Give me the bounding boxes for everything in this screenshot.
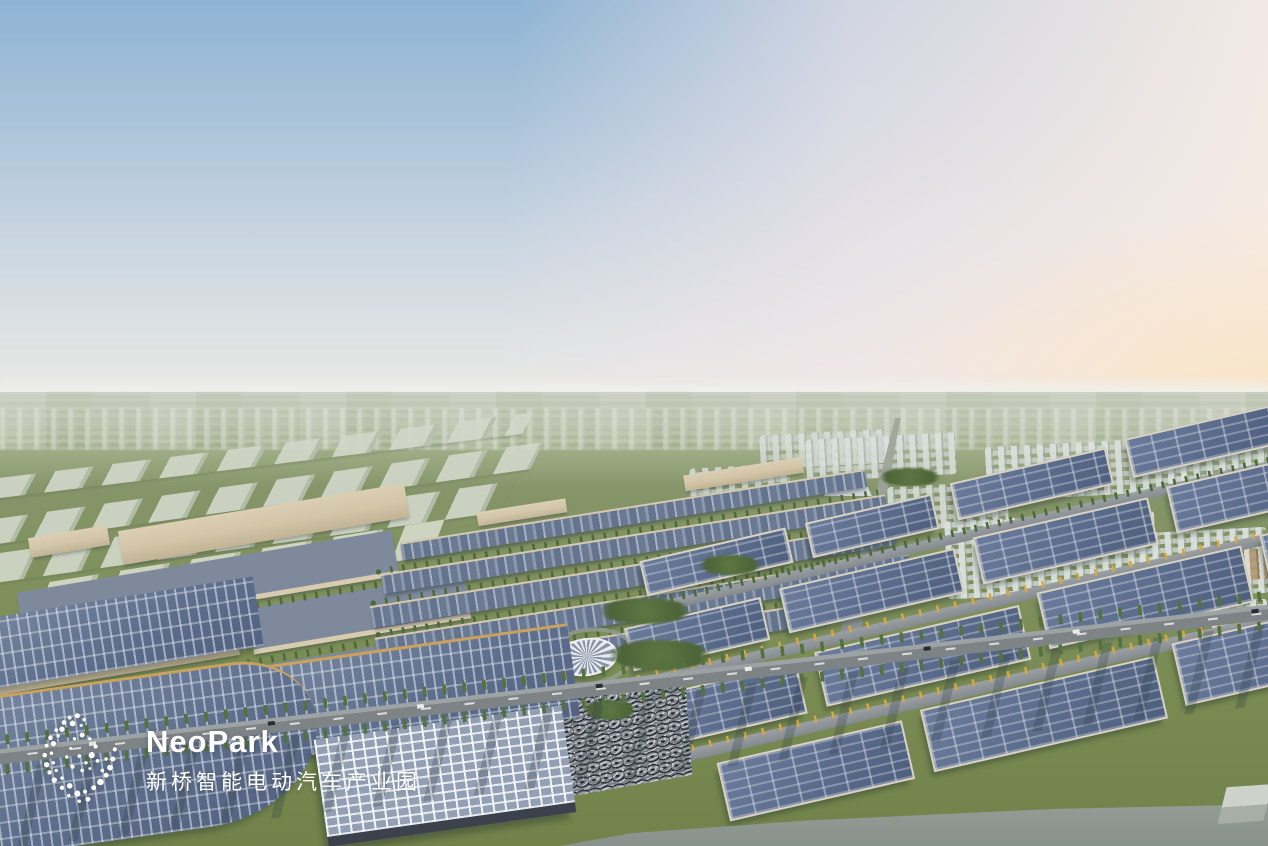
solar-warehouse bbox=[1259, 510, 1268, 589]
tree-grove bbox=[600, 598, 690, 624]
concrete-slab-building bbox=[1217, 784, 1268, 824]
logo-text-block: NeoPark 新桥智能电动汽车产业园 bbox=[146, 700, 421, 796]
neopark-logo: NeoPark 新桥智能电动汽车产业园 bbox=[38, 700, 518, 820]
logo-subtitle-chinese: 新桥智能电动汽车产业园 bbox=[146, 766, 421, 796]
neopark-logo-dots-icon bbox=[38, 708, 134, 808]
tree-grove bbox=[700, 555, 760, 575]
sky-gradient bbox=[0, 0, 1268, 398]
tree-grove bbox=[880, 468, 940, 486]
logo-wordmark: NeoPark bbox=[146, 726, 421, 757]
aerial-render-scene: NeoPark 新桥智能电动汽车产业园 bbox=[0, 0, 1268, 846]
